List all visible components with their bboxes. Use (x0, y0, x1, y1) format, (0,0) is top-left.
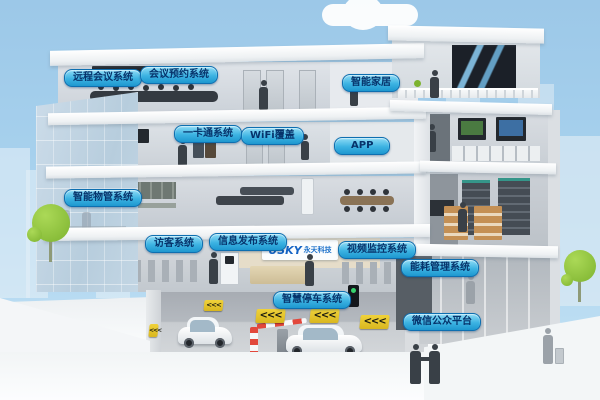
city-view-window (452, 45, 516, 93)
label-video-surveillance-system: 视频监控系统 (338, 241, 416, 259)
tree-trunk (578, 280, 581, 302)
smart-building-cutaway-illustration: USKY 永天科技 <<< <<< <<< <<< <<< (0, 0, 600, 400)
usky-logo-suffix: 永天科技 (304, 247, 332, 254)
person-silhouette (430, 70, 439, 98)
person-silhouette (209, 252, 218, 284)
barrier-gate-post (250, 327, 258, 354)
tree (561, 274, 573, 286)
reception-desk (250, 266, 310, 284)
person-silhouette-handshake (410, 344, 421, 384)
person-silhouette-traveler (543, 328, 553, 364)
car (178, 317, 232, 348)
car-wheel (215, 338, 225, 348)
direction-arrow-sign: <<< (309, 309, 339, 323)
label-property-management-system: 智能物管系统 (64, 189, 142, 207)
label-wechat-public-platform: 微信公众平台 (403, 313, 481, 331)
balcony-plant (414, 80, 421, 87)
car-window (303, 328, 338, 340)
traffic-light-green (351, 288, 356, 293)
entry-turnstiles (342, 262, 392, 284)
label-app: APP (334, 137, 390, 155)
label-smart-parking-system: 智慧停车系统 (273, 291, 351, 309)
tree (27, 227, 42, 242)
person-silhouette (466, 274, 475, 304)
door (299, 70, 316, 112)
lounge-sofa (240, 187, 294, 195)
label-remote-conference-system: 远程会议系统 (64, 69, 142, 87)
label-meeting-reservation-system: 会议预约系统 (140, 66, 218, 84)
meeting-chairs (344, 206, 350, 212)
meeting-table (340, 196, 394, 205)
tree-trunk (49, 240, 52, 262)
cloud (322, 4, 418, 26)
direction-arrow-sign: <<< (203, 300, 223, 311)
person-silhouette (259, 80, 268, 110)
luggage (555, 348, 564, 364)
car-wheel (184, 338, 194, 348)
door (266, 70, 284, 112)
person-silhouette (305, 254, 314, 286)
label-smart-home: 智能家居 (342, 74, 400, 92)
appliance-row (452, 146, 540, 161)
person-silhouette (458, 202, 467, 232)
balcony-railing (396, 88, 538, 98)
label-visitor-system: 访客系统 (145, 235, 203, 253)
person-silhouette-handshake (429, 344, 440, 384)
meeting-chairs (344, 189, 350, 195)
direction-arrow-sign: <<< (359, 315, 389, 329)
direction-arrow-sign: <<< (148, 324, 158, 337)
floor-slab (416, 244, 558, 258)
kiosk-screen (225, 256, 234, 264)
handshake-arms (418, 357, 433, 361)
direction-arrow-sign: <<< (255, 309, 285, 323)
entry-turnstiles (134, 260, 202, 282)
display-content (499, 120, 523, 136)
label-wifi-coverage: WiFi覆盖 (241, 127, 304, 145)
server-rack (498, 178, 530, 235)
lounge-sofa (216, 196, 284, 205)
label-energy-management-system: 能耗管理系统 (401, 259, 479, 277)
label-info-publishing-system: 信息发布系统 (209, 233, 287, 251)
air-conditioner-unit (301, 178, 314, 215)
storage-boxes (474, 206, 502, 240)
display-content (461, 121, 483, 135)
car-window (190, 320, 215, 332)
label-one-card-system: 一卡通系统 (174, 125, 242, 143)
